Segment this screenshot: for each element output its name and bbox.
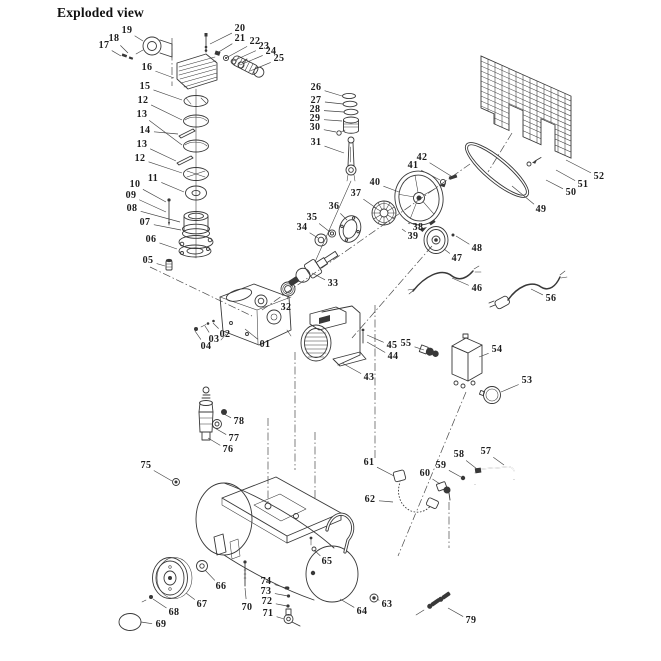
leader-line-77 xyxy=(213,427,226,435)
leader-line-14 xyxy=(154,132,178,134)
leader-line-07 xyxy=(154,225,181,230)
leader-line-01 xyxy=(245,329,258,339)
leader-line-34 xyxy=(310,233,318,238)
part-label-43: 43 xyxy=(364,373,375,383)
part-label-72: 72 xyxy=(262,597,273,607)
leader-line-57 xyxy=(493,457,504,465)
part-label-66: 66 xyxy=(216,582,227,592)
part-label-01: 01 xyxy=(260,340,271,350)
leader-line-55 xyxy=(415,347,424,350)
leader-line-40 xyxy=(383,186,399,192)
part-label-73: 73 xyxy=(261,587,272,597)
part-label-09: 09 xyxy=(126,191,137,201)
part-label-08: 08 xyxy=(127,204,138,214)
part-label-13: 13 xyxy=(137,110,148,120)
part-label-33: 33 xyxy=(328,279,339,289)
part-label-55: 55 xyxy=(401,339,412,349)
leader-line-10 xyxy=(143,189,166,202)
leader-line-31 xyxy=(324,146,344,153)
leader-line-09 xyxy=(139,200,166,212)
part-label-25: 25 xyxy=(274,54,285,64)
part-label-75: 75 xyxy=(141,461,152,471)
exploded-view-page: 1718191615121314131211100908070605202122… xyxy=(0,0,661,661)
part-label-64: 64 xyxy=(357,607,368,617)
leader-line-65 xyxy=(314,550,320,556)
leader-line-63 xyxy=(377,599,379,600)
part-label-77: 77 xyxy=(229,434,240,444)
leader-line-27 xyxy=(325,102,343,104)
part-label-21: 21 xyxy=(235,34,246,44)
leader-line-21 xyxy=(217,44,232,53)
leader-line-51 xyxy=(556,170,575,181)
leader-line-44 xyxy=(367,342,385,353)
leader-line-18 xyxy=(120,45,128,53)
part-label-31: 31 xyxy=(311,138,322,148)
part-label-54: 54 xyxy=(492,345,503,355)
leader-line-64 xyxy=(340,599,354,607)
leader-line-32 xyxy=(287,296,288,299)
part-label-49: 49 xyxy=(536,205,547,215)
leader-line-54 xyxy=(479,353,489,357)
leader-line-19 xyxy=(135,36,143,41)
part-label-05: 05 xyxy=(143,256,154,266)
leader-line-67 xyxy=(186,593,195,600)
leader-line-39 xyxy=(402,229,406,232)
leader-line-46 xyxy=(452,278,469,285)
part-label-19: 19 xyxy=(122,26,133,36)
part-label-56: 56 xyxy=(546,294,557,304)
leader-line-11 xyxy=(161,182,184,192)
page-title: Exploded view xyxy=(57,5,144,21)
part-label-42: 42 xyxy=(417,153,428,163)
part-label-16: 16 xyxy=(142,63,153,73)
leader-line-04 xyxy=(195,331,201,340)
leader-line-53 xyxy=(501,385,519,392)
part-label-70: 70 xyxy=(242,603,253,613)
leader-line-15 xyxy=(153,90,182,100)
leader-line-76 xyxy=(208,438,220,445)
part-label-10: 10 xyxy=(130,180,141,190)
part-label-46: 46 xyxy=(472,284,483,294)
leader-line-28 xyxy=(324,111,344,112)
part-label-74: 74 xyxy=(261,577,272,587)
part-label-50: 50 xyxy=(566,188,577,198)
part-label-59: 59 xyxy=(436,461,447,471)
leader-line-50 xyxy=(546,180,563,189)
leader-line-35 xyxy=(319,224,330,232)
leader-line-24 xyxy=(240,55,263,65)
leader-line-20 xyxy=(210,33,232,44)
part-label-76: 76 xyxy=(223,445,234,455)
part-label-62: 62 xyxy=(365,495,376,505)
leader-line-17 xyxy=(112,51,121,56)
part-label-60: 60 xyxy=(420,469,431,479)
part-label-71: 71 xyxy=(263,609,274,619)
part-label-53: 53 xyxy=(522,376,533,386)
leader-line-73 xyxy=(275,594,288,596)
leader-line-69 xyxy=(141,622,152,624)
leader-line-16 xyxy=(155,71,174,78)
leader-line-36 xyxy=(340,213,347,220)
leader-line-42 xyxy=(430,163,451,176)
leader-line-29 xyxy=(324,120,342,121)
part-label-39: 39 xyxy=(408,232,419,242)
part-label-40: 40 xyxy=(370,178,381,188)
leader-line-43 xyxy=(342,363,361,374)
leader-line-68 xyxy=(153,599,167,608)
leader-line-12 xyxy=(151,105,182,120)
part-label-61: 61 xyxy=(364,458,375,468)
part-label-69: 69 xyxy=(156,620,167,630)
part-label-32: 32 xyxy=(281,303,292,313)
part-label-35: 35 xyxy=(307,213,318,223)
part-label-12: 12 xyxy=(138,96,149,106)
leader-line-79 xyxy=(448,608,463,617)
leader-line-56 xyxy=(531,289,543,295)
leader-line-37 xyxy=(363,199,376,208)
leader-line-03 xyxy=(205,326,209,332)
part-label-02: 02 xyxy=(220,330,231,340)
part-label-12: 12 xyxy=(135,154,146,164)
part-label-47: 47 xyxy=(452,254,463,264)
part-label-44: 44 xyxy=(388,352,399,362)
part-label-36: 36 xyxy=(329,202,340,212)
part-label-45: 45 xyxy=(387,341,398,351)
leader-line-61 xyxy=(377,467,394,476)
part-label-26: 26 xyxy=(311,83,322,93)
part-label-14: 14 xyxy=(140,126,151,136)
part-label-48: 48 xyxy=(472,244,483,254)
part-label-07: 07 xyxy=(140,218,151,228)
part-label-34: 34 xyxy=(297,223,308,233)
leader-line-71 xyxy=(277,617,284,619)
leader-line-49 xyxy=(512,186,534,204)
part-label-52: 52 xyxy=(594,172,605,182)
part-label-11: 11 xyxy=(148,174,158,184)
part-label-58: 58 xyxy=(454,450,465,460)
leader-line-58 xyxy=(466,461,477,469)
leader-line-41 xyxy=(421,170,440,180)
part-label-79: 79 xyxy=(466,616,477,626)
leader-line-38 xyxy=(408,223,410,224)
part-label-15: 15 xyxy=(140,82,151,92)
leader-line-75 xyxy=(154,470,172,481)
leader-line-70 xyxy=(245,588,246,599)
part-label-63: 63 xyxy=(382,600,393,610)
leader-line-25 xyxy=(250,62,271,71)
part-label-18: 18 xyxy=(109,34,120,44)
part-label-65: 65 xyxy=(322,557,333,567)
leader-line-12 xyxy=(149,162,182,173)
leader-line-62 xyxy=(379,501,393,502)
leader-line-26 xyxy=(325,91,342,96)
leader-line-13 xyxy=(150,149,176,161)
leader-line-78 xyxy=(222,413,231,418)
part-label-06: 06 xyxy=(146,235,157,245)
leader-line-30 xyxy=(324,130,336,132)
part-label-13: 13 xyxy=(137,140,148,150)
leader-line-45 xyxy=(367,335,384,342)
leader-line-05 xyxy=(157,264,165,266)
leader-line-47 xyxy=(444,249,450,254)
part-label-78: 78 xyxy=(234,417,245,427)
leader-line-74 xyxy=(275,585,286,588)
leader-line-52 xyxy=(566,160,591,173)
part-label-37: 37 xyxy=(351,189,362,199)
leader-line-06 xyxy=(160,243,177,249)
leader-line-59 xyxy=(449,470,461,477)
part-label-04: 04 xyxy=(201,342,212,352)
part-label-67: 67 xyxy=(197,600,208,610)
leader-line-02 xyxy=(213,323,219,329)
leader-line-48 xyxy=(456,236,469,244)
leader-line-60 xyxy=(432,479,440,484)
leader-line-66 xyxy=(205,570,215,580)
part-label-30: 30 xyxy=(310,123,321,133)
leader-line-72 xyxy=(276,604,287,606)
leader-line-33 xyxy=(312,273,325,280)
part-label-51: 51 xyxy=(578,180,589,190)
part-label-68: 68 xyxy=(169,608,180,618)
part-label-57: 57 xyxy=(481,447,492,457)
